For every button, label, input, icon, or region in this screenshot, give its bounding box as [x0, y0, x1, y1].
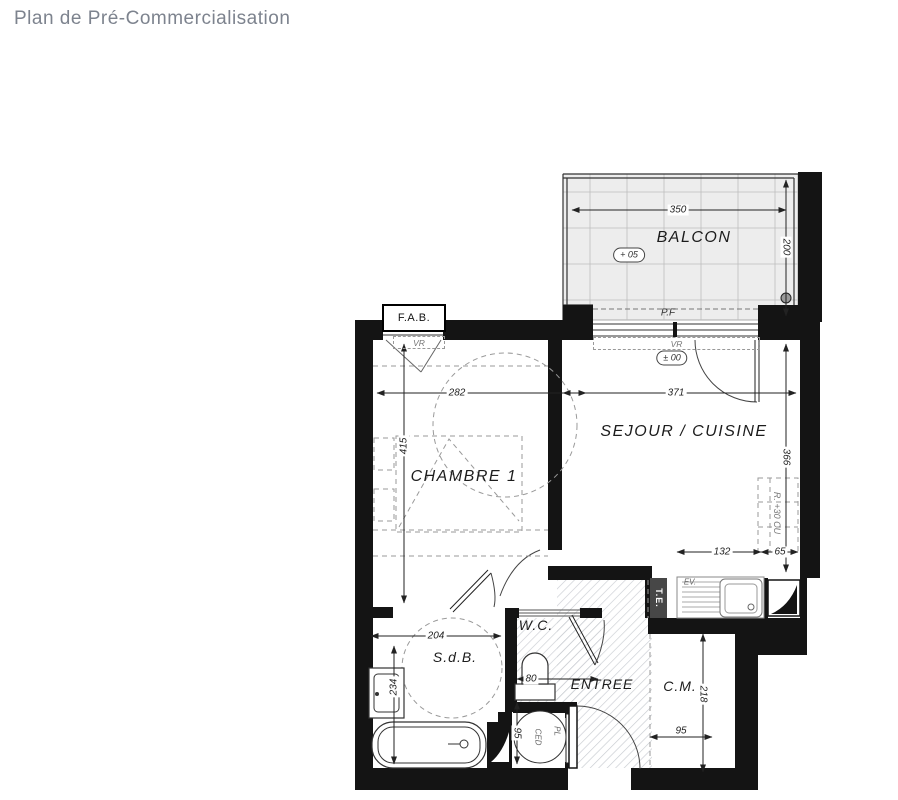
dim-bedroom-depth: 415 [399, 436, 410, 457]
sink-label: EV. [684, 578, 696, 587]
floor-plan: BALCON SEJOUR / CUISINE CHAMBRE 1 S.d.B.… [0, 0, 898, 800]
pf-label: P.F [661, 308, 675, 319]
balcony-area [563, 174, 800, 337]
dim-bathroom-width: 204 [426, 631, 447, 642]
bathroom-door-arc [491, 573, 495, 607]
room-label-entrance: ENTREE [571, 676, 634, 692]
vr-label: VR [413, 338, 425, 348]
room-label-wc: W.C. [519, 617, 554, 633]
dim-wc-depth: 95 [512, 725, 523, 740]
dim-closet-width: 95 [673, 726, 688, 737]
level-badge-balcony: + 05 [613, 248, 645, 263]
vr-box-living: VR [593, 337, 760, 350]
room-label-balcony: BALCON [657, 229, 732, 247]
dim-closet-depth: 218 [698, 684, 709, 705]
dim-kitchen-run: 132 [712, 547, 733, 558]
entry-door-leaf [569, 706, 577, 768]
water-heater-label: CED [534, 729, 543, 746]
fab-box: F.A.B. [382, 304, 446, 332]
dim-living-width: 371 [666, 388, 687, 399]
dim-living-depth: 366 [781, 447, 792, 468]
floor-plan-page: Plan de Pré-Commercialisation [0, 0, 898, 800]
turning-circle-bathroom [402, 618, 502, 718]
room-label-closet: C.M. [663, 678, 697, 694]
tub-faucet-icon [460, 740, 468, 748]
floor-plan-drawing [0, 0, 898, 800]
dim-bathroom-depth: 234 [389, 677, 400, 698]
dim-wc-width: 80 [523, 674, 538, 685]
dim-balcony-width: 350 [668, 205, 689, 216]
nightstand [374, 438, 394, 470]
bedroom-door-arc [500, 550, 540, 596]
electrical-panel-label: T.E. [654, 588, 664, 608]
fridge-label: R. +30 CU [772, 492, 782, 534]
dim-bedroom-width: 282 [447, 388, 468, 399]
toilet-tank [515, 684, 555, 700]
room-label-bedroom: CHAMBRE 1 [411, 468, 518, 486]
dim-balcony-depth: 200 [781, 237, 792, 258]
bathroom-door-leaf [450, 570, 491, 612]
vr-box-bedroom: VR [393, 336, 445, 349]
dim-kitchen-side: 65 [772, 547, 787, 558]
room-label-living-kitchen: SEJOUR / CUISINE [600, 423, 767, 441]
level-badge-living: ± 00 [656, 351, 687, 366]
vr-label: VR [671, 339, 683, 349]
placard-label: PL [553, 726, 562, 736]
fab-label: F.A.B. [398, 312, 430, 324]
nightstand [374, 489, 394, 521]
room-label-bathroom: S.d.B. [433, 649, 477, 665]
